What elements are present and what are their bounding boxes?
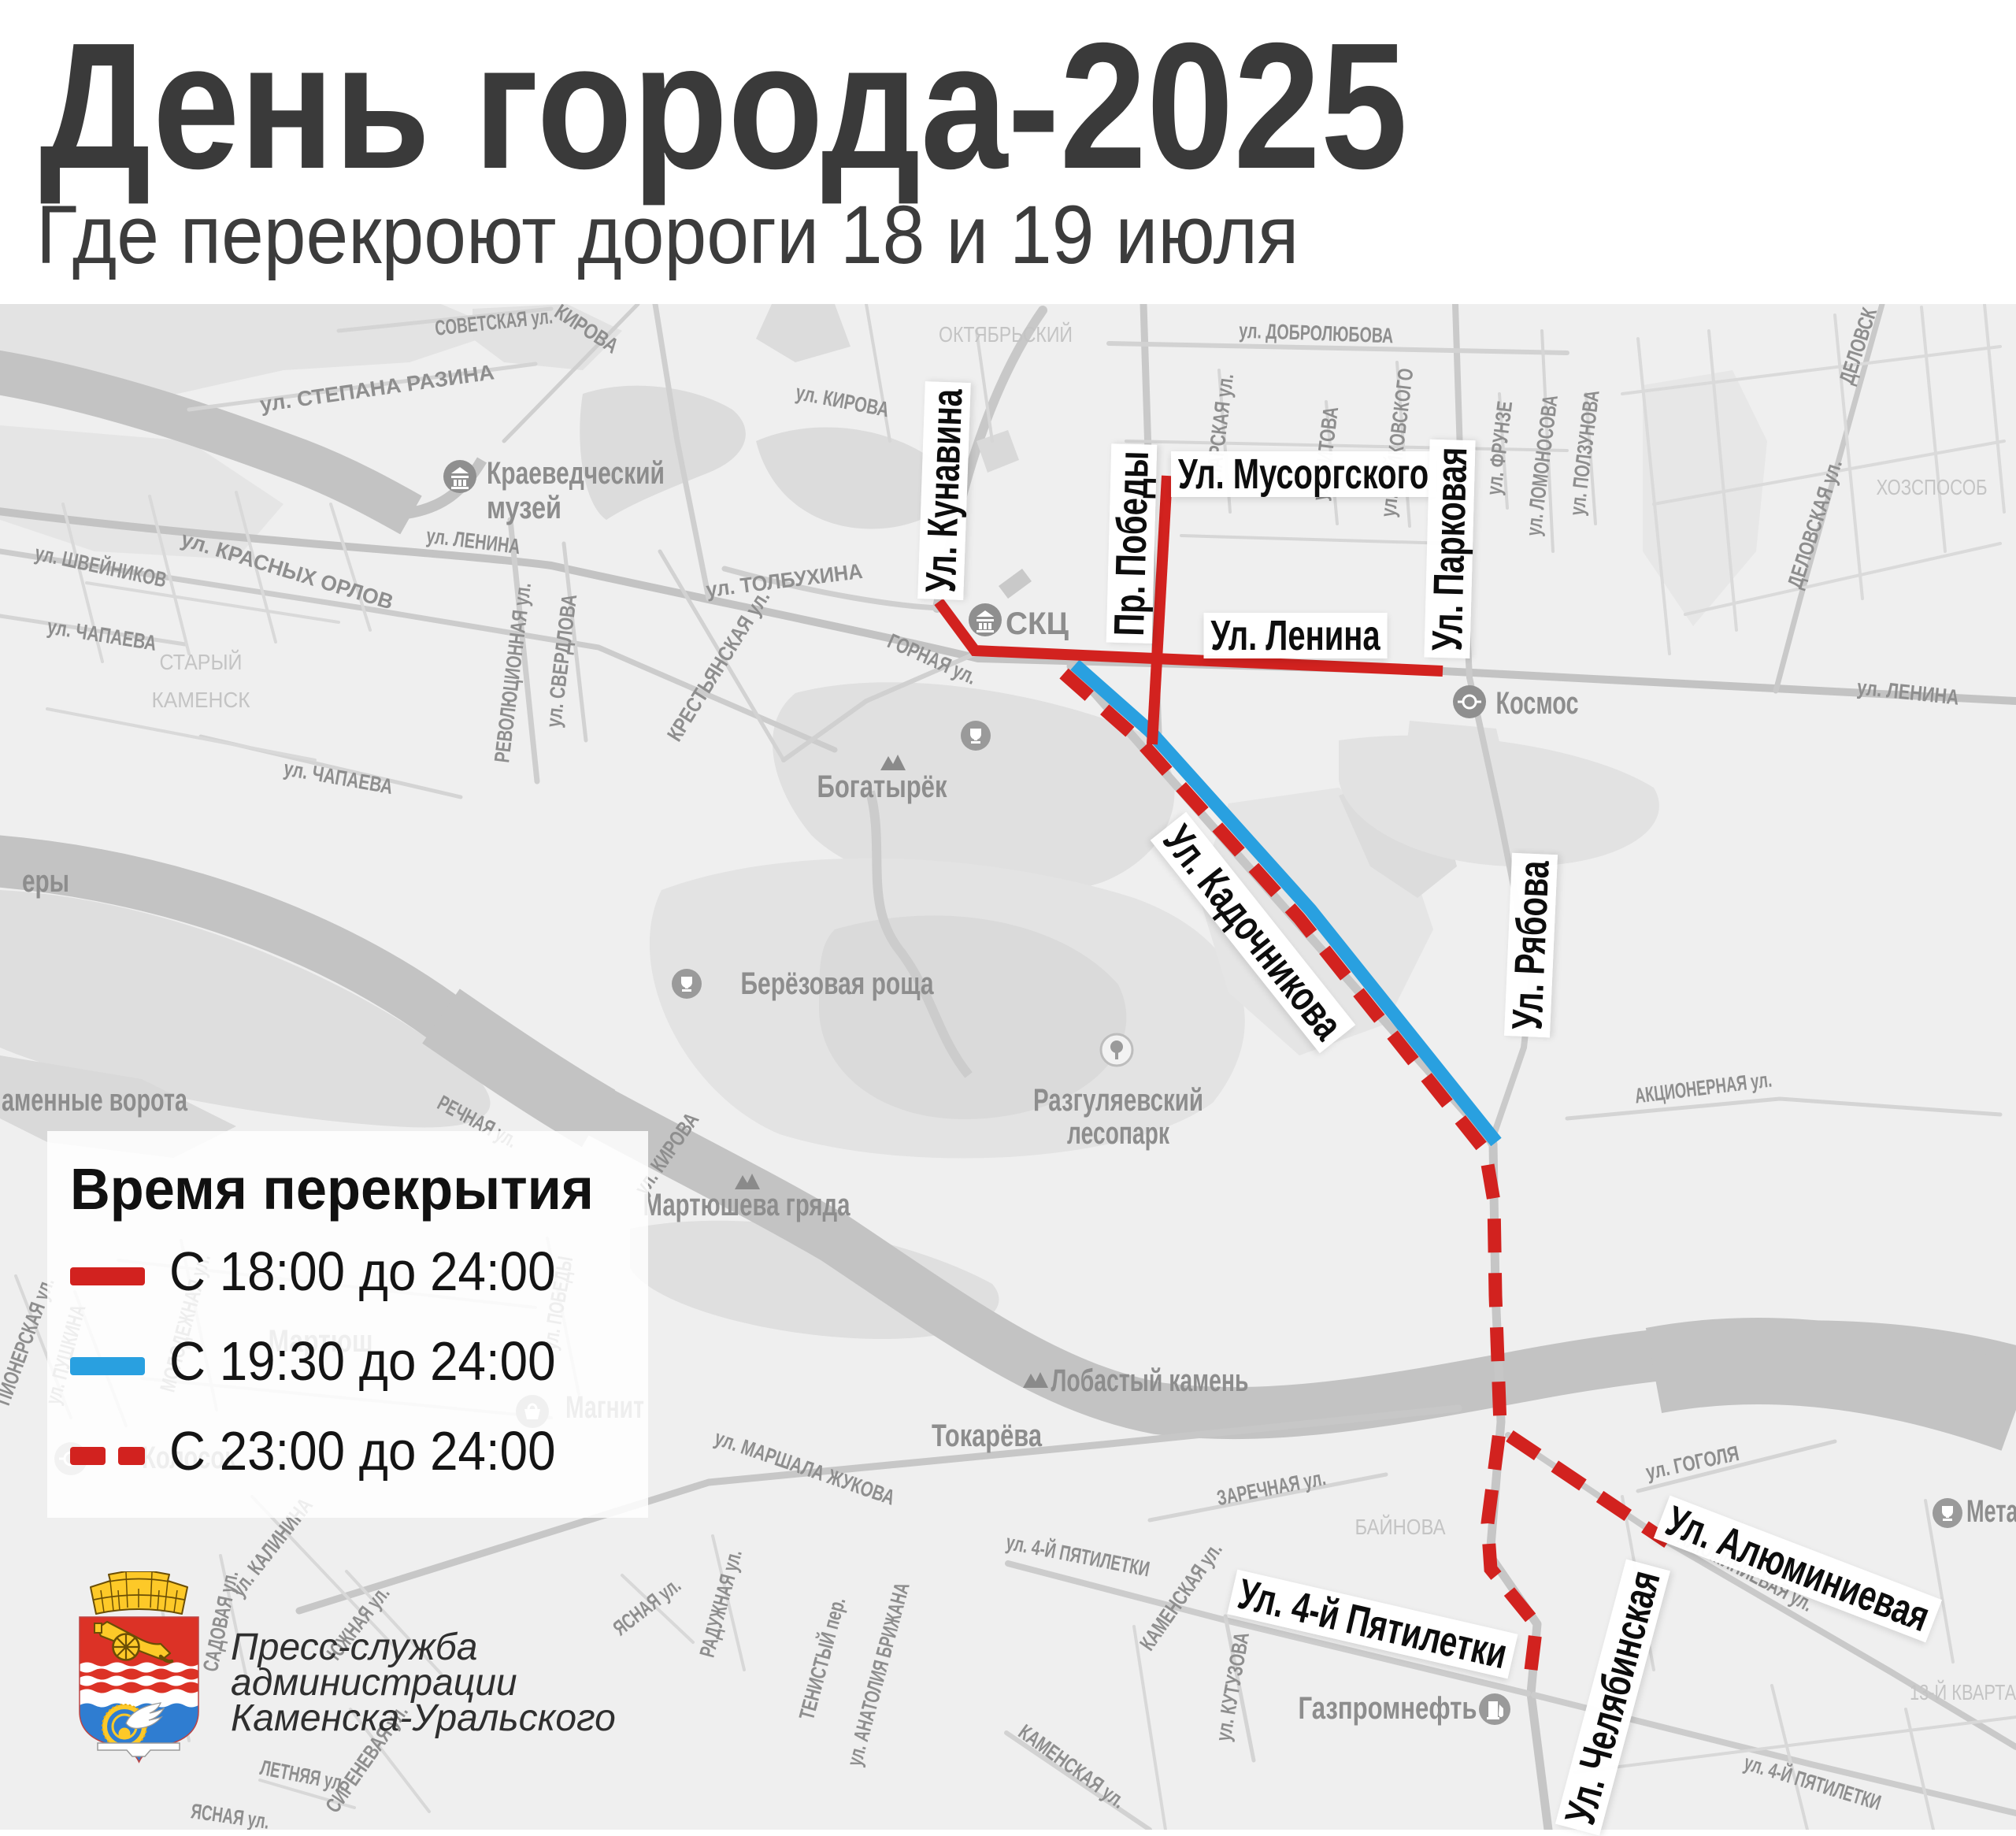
svg-text:СТАРЫЙ: СТАРЫЙ — [160, 650, 243, 674]
svg-text:еры: еры — [22, 864, 69, 899]
svg-text:Богатырёк: Богатырёк — [817, 770, 948, 804]
svg-text:Мартюшева гряда: Мартюшева гряда — [643, 1188, 851, 1222]
svg-text:ХОЗСПОСОБ: ХОЗСПОСОБ — [1877, 475, 1988, 499]
svg-text:Разгуляевский: Разгуляевский — [1033, 1083, 1203, 1118]
svg-text:лесопарк: лесопарк — [1067, 1116, 1170, 1151]
svg-text:ОКТЯБРЬСКИЙ: ОКТЯБРЬСКИЙ — [939, 322, 1073, 347]
svg-text:Газпромнефть: Газпромнефть — [1299, 1691, 1477, 1726]
svg-text:Берёзовая роща: Берёзовая роща — [741, 966, 935, 1001]
svg-text:КАМЕНСК: КАМЕНСК — [152, 688, 251, 712]
svg-text:СКЦ: СКЦ — [1006, 606, 1069, 641]
svg-text:Токарёва: Токарёва — [932, 1419, 1043, 1453]
svg-text:аменные ворота: аменные ворота — [2, 1083, 188, 1118]
svg-text:Краеведческий: Краеведческий — [487, 456, 665, 491]
svg-text:Лобастый камень: Лобастый камень — [1051, 1363, 1249, 1398]
svg-text:музей: музей — [487, 491, 561, 525]
svg-text:БАЙНОВА: БАЙНОВА — [1355, 1515, 1446, 1539]
svg-text:Космос: Космос — [1496, 686, 1579, 721]
svg-text:13-Й КВАРТАЛ: 13-Й КВАРТАЛ — [1910, 1680, 2016, 1704]
svg-text:Металл: Металл — [1966, 1494, 2016, 1529]
